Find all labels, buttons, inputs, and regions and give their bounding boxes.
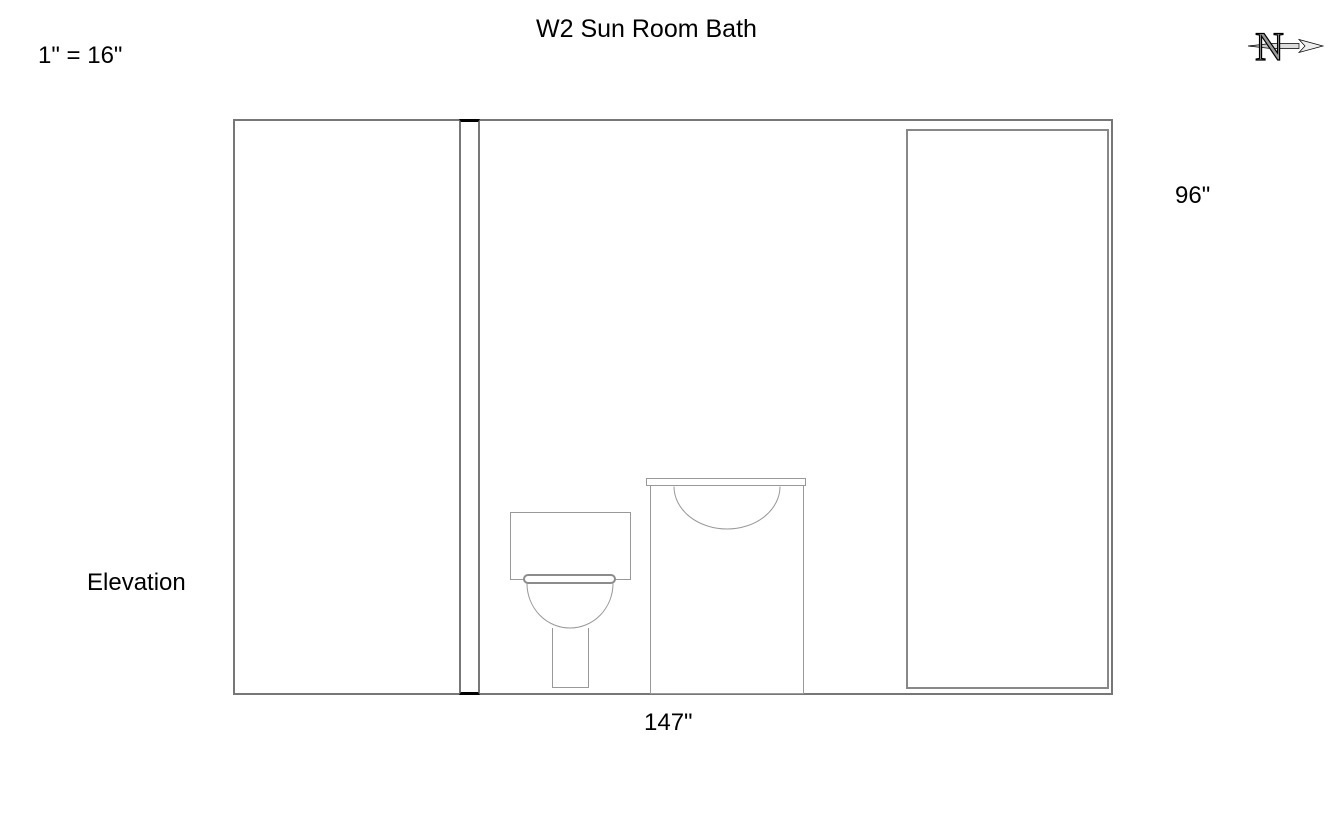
- view-label: Elevation: [87, 571, 186, 595]
- scale-label: 1" = 16": [38, 44, 122, 68]
- drawing-canvas: W2 Sun Room Bath 1" = 16" Elevation 96" …: [0, 0, 1344, 816]
- drawing-title: W2 Sun Room Bath: [536, 17, 757, 42]
- wall-section-strip: [459, 119, 480, 695]
- north-arrow-icon: N: [1247, 26, 1325, 64]
- north-arrow-head: [1299, 40, 1323, 53]
- toilet-base: [552, 628, 589, 688]
- toilet-bowl: [526, 583, 614, 630]
- width-dimension-label: 147": [644, 711, 693, 735]
- sink-bowl: [673, 486, 781, 531]
- toilet-seat: [523, 574, 616, 584]
- toilet-tank: [510, 512, 631, 580]
- north-letter: N: [1255, 26, 1284, 64]
- vanity-countertop: [646, 478, 806, 486]
- door-panel: [906, 129, 1109, 689]
- height-dimension-label: 96": [1175, 184, 1210, 208]
